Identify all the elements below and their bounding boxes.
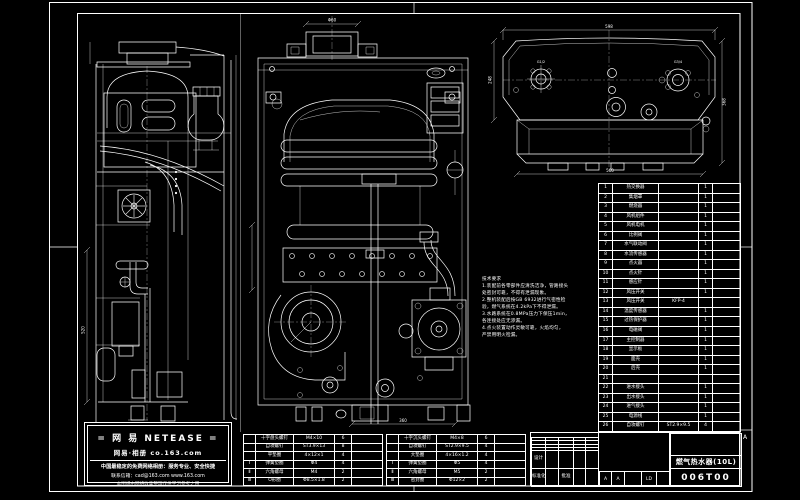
fastener-table-right: 十字沉头螺钉M4×86自攻螺钉ST2.9×9.54大垫圈4×16×1.24Ⅰ弹簧… (386, 434, 526, 486)
label-conn-left: G1/2 (537, 60, 545, 64)
table-cell: 6 (599, 231, 613, 241)
table-cell: ST2.9×9.5 (659, 422, 699, 432)
table-cell (546, 451, 559, 469)
table-cell (713, 298, 741, 308)
table-cell: 5 (599, 222, 613, 232)
table-cell: 8 (599, 250, 613, 260)
table-row: 4风机组件1 (599, 212, 741, 222)
table-cell (659, 355, 699, 365)
table-cell (495, 452, 526, 461)
table-cell: 4 (478, 443, 495, 452)
table-cell: Ⅰ (244, 460, 256, 469)
table-cell (352, 435, 383, 444)
table-cell (713, 288, 741, 298)
table-cell (387, 452, 399, 461)
table-cell (495, 460, 526, 469)
table-cell (244, 443, 256, 452)
table-cell: 1 (699, 212, 713, 222)
table-cell: 燃烧器 (613, 203, 659, 213)
table-cell: 4×12×1 (294, 452, 335, 461)
table-cell: 25 (599, 412, 613, 422)
table-cell: 22 (599, 384, 613, 394)
table-cell: 1 (699, 365, 713, 375)
table-cell: 感应针 (613, 279, 659, 289)
front-view: Φ60 (249, 16, 470, 427)
top-view: 598 248 368 560 G1/2 G3/4 (488, 24, 727, 177)
table-cell (713, 412, 741, 422)
table-cell (659, 203, 699, 213)
table-cell: Ⅲ (244, 477, 256, 486)
table-cell: 6 (335, 435, 352, 444)
table-cell (713, 222, 741, 232)
watermark-logo-text: = 网 易 NETEASE = (88, 431, 228, 444)
table-cell (659, 374, 699, 384)
table-row: 8水流传感器1 (599, 250, 741, 260)
table-row: 5风机电机1 (599, 222, 741, 232)
table-cell: 1 (699, 346, 713, 356)
table-cell: Ⅲ (387, 477, 399, 486)
table-cell (495, 469, 526, 478)
table-cell: 7 (599, 241, 613, 251)
table-cell (659, 269, 699, 279)
table-cell: 1 (699, 355, 713, 365)
table-cell (546, 469, 559, 487)
table-cell: 11 (599, 279, 613, 289)
note-line: 2.整机装配后按GB 6932进行气密性检 (482, 297, 596, 304)
table-cell (699, 298, 713, 308)
table-row: 17主控制器1 (599, 336, 741, 346)
table-cell: 1 (699, 288, 713, 298)
table-cell: 自攻螺钉 (399, 443, 437, 452)
drawing-number: 006T00 (681, 473, 730, 483)
table-cell: Φ12×2 (437, 477, 478, 486)
table-cell: Φ5 (437, 460, 478, 469)
table-cell: 1 (699, 326, 713, 336)
table-cell: Φ4 (294, 460, 335, 469)
table-row: 1热交换器1 (599, 184, 741, 194)
table-cell: M5 (437, 469, 478, 478)
table-cell: 水气联动阀 (613, 241, 659, 251)
note-line: 1.装配前各零部件应清洗洁净，管路接头 (482, 283, 596, 290)
table-cell: 14 (599, 307, 613, 317)
table-cell (659, 412, 699, 422)
watermark-box: = 网 易 NETEASE = 网易·相册 co.163.com 中国最稳定的免… (84, 422, 232, 486)
table-row: 22进水接头1 (599, 384, 741, 394)
table-cell (713, 374, 741, 384)
table-row: 23出水接头1 (599, 393, 741, 403)
table-cell: 热交换器 (613, 184, 659, 194)
table-cell: 进水接头 (613, 384, 659, 394)
table-cell: 自攻螺钉 (613, 422, 659, 432)
note-line: 各连接处应无渗漏。 (482, 318, 596, 325)
table-cell: 1 (699, 222, 713, 232)
table-cell (659, 193, 699, 203)
table-cell (659, 250, 699, 260)
table-row: 设计 (532, 451, 599, 469)
table-cell: 风压开关 (613, 298, 659, 308)
table-cell (586, 469, 599, 487)
table-row: 9点火器1 (599, 260, 741, 270)
table-cell: Ⅱ (244, 469, 256, 478)
table-cell (713, 184, 741, 194)
dim-right-height: 368 (722, 98, 727, 106)
table-cell (713, 260, 741, 270)
table-cell: 4 (335, 460, 352, 469)
table-cell: 十字沉头螺钉 (399, 435, 437, 444)
table-cell: 水流传感器 (613, 250, 659, 260)
table-cell: 1 (599, 184, 613, 194)
table-cell: 8 (335, 443, 352, 452)
table-row: 13风压开关KFP-4 (599, 298, 741, 308)
dim-left-view-height: 520 (81, 326, 86, 334)
table-cell: 4×16×1.2 (437, 452, 478, 461)
title-block-revision-grid: 设计标准化批准 (531, 437, 599, 487)
table-cell (713, 365, 741, 375)
table-row: 平垫圈4×12×14 (244, 452, 383, 461)
table-cell: 15 (599, 317, 613, 327)
table-row: 19面壳1 (599, 355, 741, 365)
table-row: 自攻螺钉ST3.9×138 (244, 443, 383, 452)
table-row: 18显示板1 (599, 346, 741, 356)
table-cell (659, 288, 699, 298)
table-row: 2集烟罩1 (599, 193, 741, 203)
table-cell: 1 (699, 269, 713, 279)
table-cell (713, 250, 741, 260)
table-cell: 自攻螺钉 (256, 443, 294, 452)
table-cell (352, 443, 383, 452)
dim-middle-bottom: 360 (399, 418, 407, 423)
table-cell (659, 393, 699, 403)
table-cell: 集烟罩 (613, 193, 659, 203)
table-cell: 2 (478, 469, 495, 478)
table-cell: M4 (294, 469, 335, 478)
table-cell: 9 (599, 260, 613, 270)
stage-mark-1: A (604, 477, 607, 482)
table-row: 7水气联动阀1 (599, 241, 741, 251)
table-cell (713, 241, 741, 251)
table-cell: 六角螺母 (399, 469, 437, 478)
table-cell (713, 279, 741, 289)
table-cell: 1 (699, 203, 713, 213)
table-row: 25电源线1 (599, 412, 741, 422)
bom-table: 1热交换器12集烟罩13燃烧器14风机组件15风机电机16比例阀17水气联动阀1… (598, 183, 741, 432)
table-row: 11感应针1 (599, 279, 741, 289)
cad-drawing-sheet: 520 Φ60 (0, 0, 800, 500)
table-cell (495, 435, 526, 444)
table-cell: 十字盘头螺钉 (256, 435, 294, 444)
note-line: 验，燃气系统在4.2kPa下不得泄漏。 (482, 304, 596, 311)
dim-flue-width: Φ60 (328, 18, 337, 23)
table-row: Ⅰ弹簧垫圈Φ54 (387, 460, 526, 469)
table-cell (659, 317, 699, 327)
table-cell: 1 (699, 193, 713, 203)
zone-marker: A (743, 434, 747, 441)
title-block: 设计标准化批准 A A LD 燃气热水器(10L) 006T00 (530, 432, 740, 486)
table-cell: 1 (699, 184, 713, 194)
table-cell: 温度传感器 (613, 307, 659, 317)
table-cell: Φ8.5×1.8 (294, 477, 335, 486)
table-cell (574, 469, 586, 487)
table-cell (659, 260, 699, 270)
table-row: 15过热保护器1 (599, 317, 741, 327)
table-cell (352, 452, 383, 461)
dim-left-height: 248 (488, 76, 493, 84)
table-cell: 2 (478, 477, 495, 486)
table-cell: 24 (599, 403, 613, 413)
table-row: Ⅲ密封圈Φ12×22 (387, 477, 526, 486)
table-cell: Ⅱ (387, 469, 399, 478)
fastener-table-left: 十字盘头螺钉M4×106自攻螺钉ST3.9×138平垫圈4×12×14Ⅰ弹簧垫圈… (243, 434, 383, 486)
table-cell (659, 279, 699, 289)
table-cell (244, 435, 256, 444)
table-cell: 1 (699, 403, 713, 413)
table-cell (659, 222, 699, 232)
table-cell: 1 (699, 307, 713, 317)
table-cell (699, 374, 713, 384)
table-cell: 电磁阀 (613, 326, 659, 336)
title-block-middle: A A LD (598, 433, 669, 487)
table-cell: 1 (699, 231, 713, 241)
table-cell: 2 (599, 193, 613, 203)
table-cell: 主控制器 (613, 336, 659, 346)
table-cell: 20 (599, 365, 613, 375)
table-cell: 16 (599, 326, 613, 336)
table-cell: 2 (335, 477, 352, 486)
table-cell (495, 443, 526, 452)
table-cell: 设计 (532, 451, 546, 469)
table-cell: 3 (599, 203, 613, 213)
table-cell (713, 307, 741, 317)
table-cell: 风压开关 (613, 288, 659, 298)
table-cell (659, 384, 699, 394)
table-cell: 点火针 (613, 269, 659, 279)
note-line: 4.点火装置动作灵敏可靠，火焰均匀， (482, 325, 596, 332)
table-cell (574, 451, 586, 469)
table-row: 标准化批准 (532, 469, 599, 487)
table-row: 26自攻螺钉ST2.9×9.54 (599, 422, 741, 432)
table-cell (352, 460, 383, 469)
table-row: 14温度传感器1 (599, 307, 741, 317)
table-cell (659, 241, 699, 251)
table-row: Ⅱ六角螺母M52 (387, 469, 526, 478)
table-row: 6比例阀1 (599, 231, 741, 241)
table-cell: 4 (478, 460, 495, 469)
table-cell (387, 435, 399, 444)
table-cell (659, 231, 699, 241)
table-cell: 面壳 (613, 355, 659, 365)
table-cell (659, 365, 699, 375)
table-cell: 13 (599, 298, 613, 308)
table-cell (244, 452, 256, 461)
table-cell: 1 (699, 317, 713, 327)
table-cell: 密封圈 (399, 477, 437, 486)
table-cell: 4 (599, 212, 613, 222)
table-cell (387, 443, 399, 452)
watermark-slogan: 中国最稳定的免费网络相册：服务专业、安全快捷 (88, 463, 228, 470)
table-cell: 标准化 (532, 469, 546, 487)
note-line: 技术要求 (482, 276, 596, 283)
table-cell: 1 (699, 241, 713, 251)
table-cell: 点火器 (613, 260, 659, 270)
table-cell (613, 374, 659, 384)
table-cell: 比例阀 (613, 231, 659, 241)
watermark-divider (90, 460, 226, 461)
table-cell: 风机电机 (613, 222, 659, 232)
table-row: 10点火针1 (599, 269, 741, 279)
stage-mark-2: A (616, 477, 619, 482)
table-cell (659, 403, 699, 413)
table-cell (713, 269, 741, 279)
table-cell: 进气接头 (613, 403, 659, 413)
table-cell: 六角螺母 (256, 469, 294, 478)
table-cell: 电源线 (613, 412, 659, 422)
table-cell: 1 (699, 260, 713, 270)
table-cell: KFP-4 (659, 298, 699, 308)
table-cell: 1 (699, 393, 713, 403)
table-cell: O形圈 (256, 477, 294, 486)
watermark-site: 网易·相册 co.163.com (88, 447, 228, 457)
watermark-contact: 联系信箱：cad@163.com www.163.com (88, 472, 228, 479)
table-cell: 显示板 (613, 346, 659, 356)
note-line: 严禁用明火检漏。 (482, 332, 596, 339)
side-view: 520 (81, 42, 238, 430)
table-cell: 1 (699, 384, 713, 394)
dim-bottom-width: 560 (606, 168, 614, 173)
table-row: 21 (599, 374, 741, 384)
note-line: 处密封可靠，不得有泄漏现象。 (482, 290, 596, 297)
table-cell (659, 212, 699, 222)
table-cell (713, 384, 741, 394)
table-cell (659, 184, 699, 194)
table-cell: 弹簧垫圈 (399, 460, 437, 469)
table-cell: 4 (335, 452, 352, 461)
table-cell: ST3.9×13 (294, 443, 335, 452)
technical-notes: 技术要求1.装配前各零部件应清洗洁净，管路接头 处密封可靠，不得有泄漏现象。2.… (482, 276, 596, 339)
table-cell: 2 (335, 469, 352, 478)
table-row: 16电磁阀1 (599, 326, 741, 336)
table-cell (586, 451, 599, 469)
table-row: 24进气接头1 (599, 403, 741, 413)
table-row: 大垫圈4×16×1.24 (387, 452, 526, 461)
table-row: ⅢO形圈Φ8.5×1.82 (244, 477, 383, 486)
table-cell: 19 (599, 355, 613, 365)
table-row: 3燃烧器1 (599, 203, 741, 213)
table-cell: 批准 (559, 469, 574, 487)
table-cell: 23 (599, 393, 613, 403)
table-cell: 21 (599, 374, 613, 384)
title-block-right: 燃气热水器(10L) 006T00 (669, 433, 741, 487)
table-cell: M4×8 (437, 435, 478, 444)
table-cell: 12 (599, 288, 613, 298)
table-cell (713, 326, 741, 336)
table-cell: 1 (699, 412, 713, 422)
table-row: 自攻螺钉ST2.9×9.54 (387, 443, 526, 452)
table-cell: 出水接头 (613, 393, 659, 403)
table-cell: 过热保护器 (613, 317, 659, 327)
table-cell: 4 (699, 422, 713, 432)
table-cell: ST2.9×9.5 (437, 443, 478, 452)
table-cell (713, 422, 741, 432)
dim-top-width: 598 (605, 24, 613, 29)
table-row: 12风压开关1 (599, 288, 741, 298)
table-cell (713, 336, 741, 346)
table-cell (495, 477, 526, 486)
table-row: Ⅰ弹簧垫圈Φ44 (244, 460, 383, 469)
table-cell (713, 203, 741, 213)
table-cell (713, 231, 741, 241)
table-cell (713, 346, 741, 356)
table-cell: 风机组件 (613, 212, 659, 222)
table-cell: M4×10 (294, 435, 335, 444)
table-cell: 后壳 (613, 365, 659, 375)
table-cell (713, 193, 741, 203)
table-cell: 1 (699, 279, 713, 289)
table-cell: 弹簧垫圈 (256, 460, 294, 469)
table-cell: 1 (699, 336, 713, 346)
watermark-inner: = 网 易 NETEASE = 网易·相册 co.163.com 中国最稳定的免… (87, 425, 229, 483)
table-cell (713, 355, 741, 365)
table-cell (559, 451, 574, 469)
table-cell: 4 (478, 452, 495, 461)
table-cell (659, 326, 699, 336)
table-cell (713, 403, 741, 413)
table-row: 十字盘头螺钉M4×106 (244, 435, 383, 444)
table-cell (713, 393, 741, 403)
scale-code: LD (646, 477, 652, 482)
label-conn-right: G3/4 (674, 60, 683, 64)
table-row: 十字沉头螺钉M4×86 (387, 435, 526, 444)
table-cell: 平垫圈 (256, 452, 294, 461)
table-cell: 大垫圈 (399, 452, 437, 461)
table-cell (659, 346, 699, 356)
table-cell: 18 (599, 346, 613, 356)
table-cell (713, 317, 741, 327)
table-cell (352, 477, 383, 486)
note-line: 3.水路系统在0.8MPa压力下保压1min， (482, 311, 596, 318)
table-cell: 26 (599, 422, 613, 432)
watermark-note: 本图纸由网络收集整理仅供学习参考之用 (88, 481, 228, 487)
table-cell (713, 212, 741, 222)
table-cell (659, 336, 699, 346)
table-cell: Ⅰ (387, 460, 399, 469)
table-row: 20后壳1 (599, 365, 741, 375)
table-cell: 10 (599, 269, 613, 279)
table-cell: 17 (599, 336, 613, 346)
table-cell: 1 (699, 250, 713, 260)
table-cell (352, 469, 383, 478)
drawing-title: 燃气热水器(10L) (676, 457, 737, 467)
table-cell: 6 (478, 435, 495, 444)
table-cell (659, 307, 699, 317)
table-row: Ⅱ六角螺母M42 (244, 469, 383, 478)
